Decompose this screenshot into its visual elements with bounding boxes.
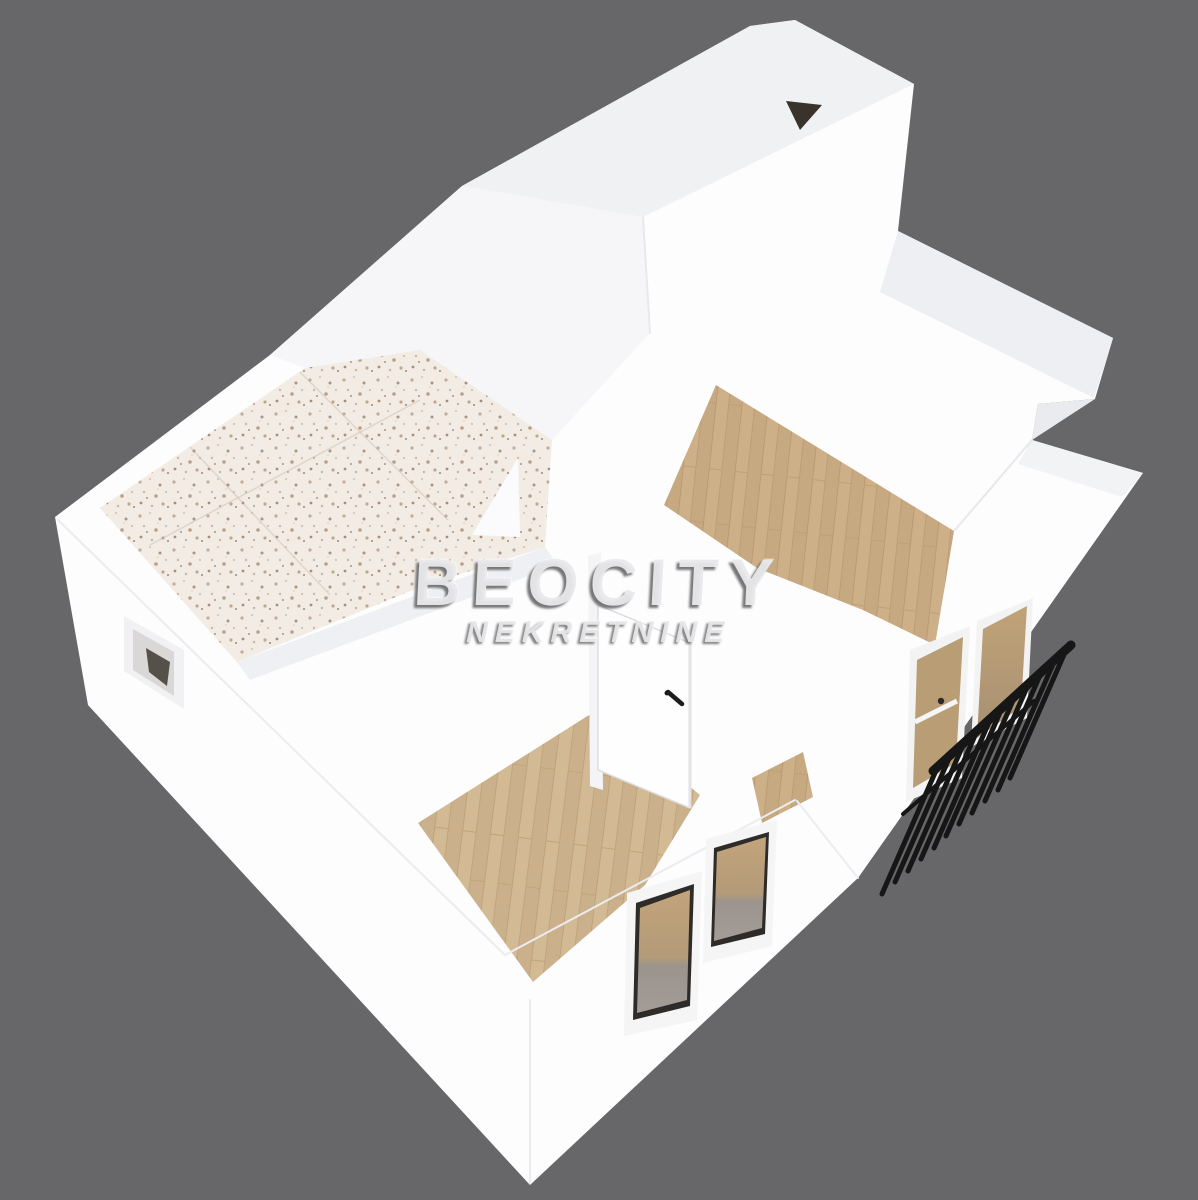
front-window-2 bbox=[703, 820, 777, 963]
door-handle-rose bbox=[665, 691, 670, 696]
balcony-door-handle bbox=[938, 698, 944, 704]
window-glass bbox=[714, 837, 766, 941]
floorplan-screenshot: BEOCITY NEKRETNINE bbox=[0, 0, 1198, 1200]
floorplan-render bbox=[0, 0, 1198, 1200]
front-window-1 bbox=[624, 871, 702, 1036]
window-glass bbox=[637, 890, 690, 1013]
